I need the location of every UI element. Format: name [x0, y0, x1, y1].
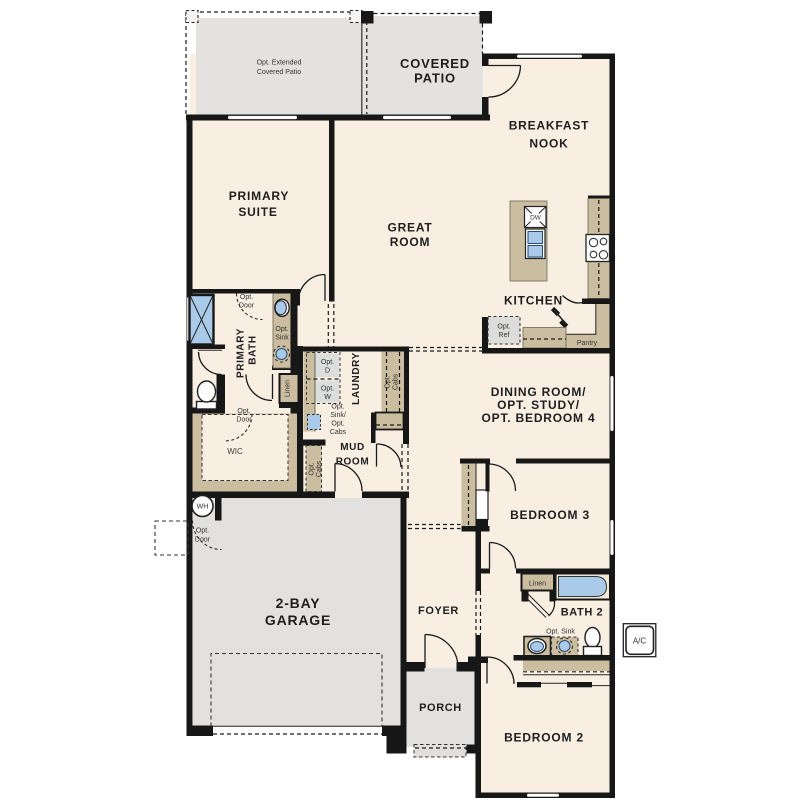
svg-text:Door: Door [236, 417, 252, 424]
svg-text:Opt.: Opt. [237, 408, 250, 415]
svg-text:NOOK: NOOK [529, 137, 568, 151]
svg-text:PRIMARY: PRIMARY [236, 328, 247, 378]
svg-text:BATH: BATH [248, 335, 259, 364]
svg-text:2-BAY: 2-BAY [276, 595, 321, 611]
svg-text:Door: Door [239, 303, 255, 310]
svg-text:COVERED: COVERED [400, 56, 470, 71]
svg-text:Opt.: Opt. [196, 528, 209, 535]
svg-text:Cabs: Cabs [393, 373, 400, 390]
svg-text:Opt.: Opt. [321, 359, 334, 366]
svg-text:Opt.: Opt. [497, 324, 510, 331]
svg-text:GARAGE: GARAGE [265, 612, 331, 628]
svg-text:A/C: A/C [633, 637, 647, 646]
svg-text:Opt.: Opt. [240, 294, 253, 301]
svg-text:W: W [324, 394, 331, 401]
svg-text:WIC: WIC [227, 447, 243, 456]
svg-text:ROOM: ROOM [390, 235, 431, 249]
svg-text:Opt.: Opt. [331, 421, 344, 428]
svg-text:OPT. BEDROOM 4: OPT. BEDROOM 4 [482, 411, 596, 425]
svg-text:Pantry: Pantry [577, 340, 598, 347]
svg-text:Linen: Linen [529, 581, 546, 588]
svg-text:BATH 2: BATH 2 [561, 607, 604, 619]
svg-text:Opt.: Opt. [331, 404, 344, 411]
svg-text:DW: DW [530, 215, 542, 222]
svg-text:Opt.: Opt. [321, 386, 334, 393]
svg-text:OPT. STUDY/: OPT. STUDY/ [497, 398, 580, 412]
svg-text:Linen: Linen [285, 380, 292, 397]
svg-text:Opt.: Opt. [309, 462, 316, 475]
svg-text:Cabs: Cabs [330, 429, 347, 436]
svg-text:SUITE: SUITE [238, 205, 277, 219]
svg-text:DINING ROOM/: DINING ROOM/ [491, 385, 587, 399]
svg-text:Cabs: Cabs [316, 460, 323, 477]
svg-text:PORCH: PORCH [419, 702, 462, 714]
svg-text:PRIMARY: PRIMARY [229, 189, 290, 203]
svg-text:Opt. Sink: Opt. Sink [546, 629, 575, 636]
svg-text:PATIO: PATIO [414, 71, 456, 86]
svg-text:LAUNDRY: LAUNDRY [351, 352, 362, 405]
svg-text:Sink: Sink [275, 335, 289, 342]
svg-text:WH: WH [197, 504, 209, 511]
svg-text:GREAT: GREAT [387, 221, 432, 235]
svg-text:Covered Patio: Covered Patio [257, 69, 301, 76]
svg-text:Ref: Ref [499, 332, 510, 339]
svg-text:Opt.: Opt. [385, 375, 392, 388]
svg-text:Sink/: Sink/ [330, 412, 346, 419]
svg-text:BEDROOM 3: BEDROOM 3 [510, 508, 590, 522]
svg-text:Door: Door [195, 537, 211, 544]
svg-text:BREAKFAST: BREAKFAST [509, 119, 590, 133]
svg-text:ROOM: ROOM [336, 457, 370, 468]
svg-text:Opt.: Opt. [275, 326, 288, 333]
svg-text:FOYER: FOYER [418, 605, 459, 617]
svg-text:MUD: MUD [340, 442, 365, 453]
svg-text:Opt. Extended: Opt. Extended [257, 60, 302, 67]
svg-text:BEDROOM 2: BEDROOM 2 [504, 731, 584, 745]
svg-text:D: D [325, 368, 330, 375]
svg-text:KITCHEN: KITCHEN [504, 294, 563, 308]
